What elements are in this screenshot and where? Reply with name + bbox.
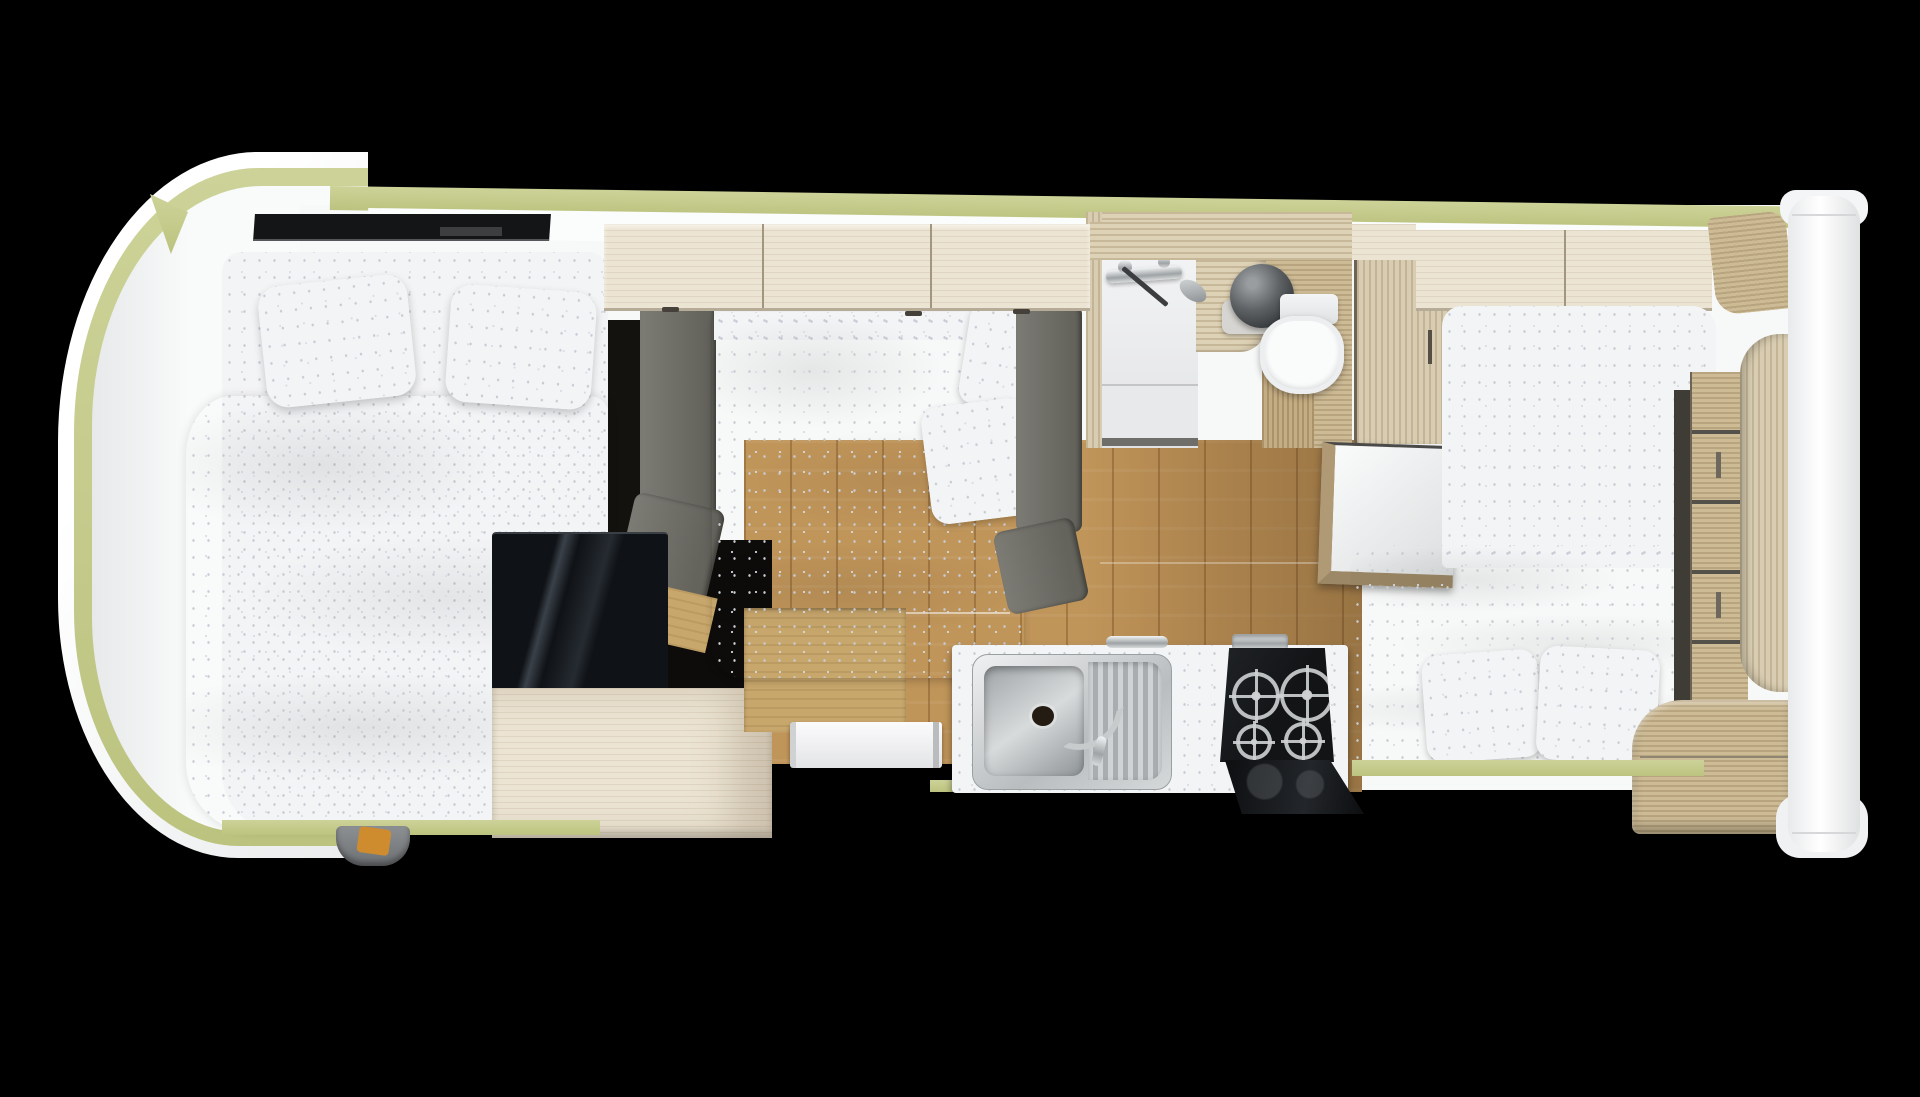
burner-icon <box>1236 724 1272 760</box>
gas-hob <box>1220 648 1334 762</box>
drawer-handle-icon <box>1716 452 1721 478</box>
sofa-backrest <box>1016 306 1082 532</box>
seatbelt-buckle-orange <box>356 826 391 856</box>
skylight-icon <box>253 214 551 241</box>
hob-lid-handle-icon <box>1232 634 1288 650</box>
bed-latch-icon <box>662 307 679 312</box>
overhead-lockers-rear <box>1416 230 1712 311</box>
sink-drain-icon <box>1032 706 1054 726</box>
entry-step <box>790 722 942 768</box>
locker-door-seam <box>762 224 764 308</box>
side-cabinet <box>492 688 772 838</box>
toilet-lid <box>1260 316 1344 394</box>
locker-door-seam <box>930 224 932 308</box>
overhead-lockers-front <box>604 224 1090 311</box>
rear-bed-pillow-left <box>1420 648 1543 764</box>
burner-icon <box>1284 722 1322 760</box>
bottom-trim-right <box>1352 760 1704 776</box>
burner-icon <box>1232 672 1280 720</box>
wardrobe-handle-icon <box>1428 330 1432 364</box>
glass-cabinet <box>492 532 668 692</box>
panel-seam <box>1792 832 1856 834</box>
rear-corner-top-wood <box>1707 210 1795 316</box>
towel-rail-icon <box>1106 636 1168 648</box>
cabinet-seam <box>1640 756 1792 758</box>
shower-door-base <box>1102 438 1198 446</box>
locker-door-seam <box>1564 230 1566 308</box>
floor-seam-highlight-2 <box>1100 562 1320 564</box>
sofa-backrest-lower <box>992 516 1090 615</box>
front-bed-pillow-left <box>256 272 418 409</box>
entry-threshold <box>933 722 939 768</box>
front-bed-pillow-right <box>444 283 598 411</box>
panel-seam <box>1792 214 1856 216</box>
motorhome-floorplan <box>0 0 1920 1097</box>
drawer-handle-icon <box>1716 592 1721 618</box>
rear-band-wood <box>1352 224 1416 260</box>
rear-body-panel <box>1788 196 1860 852</box>
skylight-vent <box>440 227 502 236</box>
bed-latch-icon <box>905 311 922 316</box>
front-bench-backrest <box>640 300 716 518</box>
bed-latch-icon <box>1013 309 1030 314</box>
shower-door <box>1102 384 1198 442</box>
burner-icon <box>1280 668 1334 722</box>
bottom-trim-left <box>222 820 600 835</box>
washroom-top-band <box>1090 222 1352 260</box>
